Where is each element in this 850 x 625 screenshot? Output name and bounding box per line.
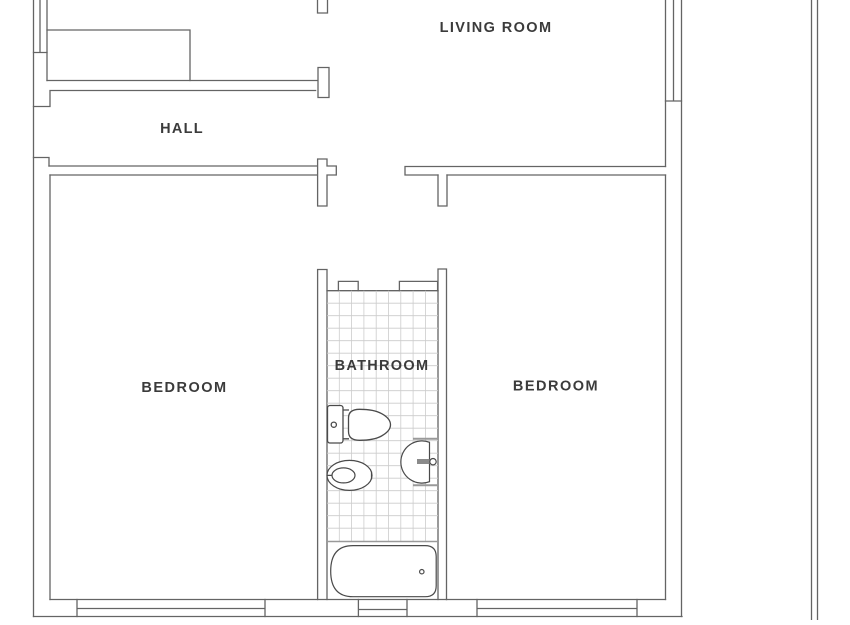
- svg-text:BEDROOM: BEDROOM: [513, 379, 599, 395]
- svg-text:LIVING ROOM: LIVING ROOM: [440, 20, 553, 36]
- svg-text:HALL: HALL: [160, 121, 204, 137]
- svg-text:BATHROOM: BATHROOM: [335, 358, 430, 374]
- svg-text:BEDROOM: BEDROOM: [141, 380, 227, 396]
